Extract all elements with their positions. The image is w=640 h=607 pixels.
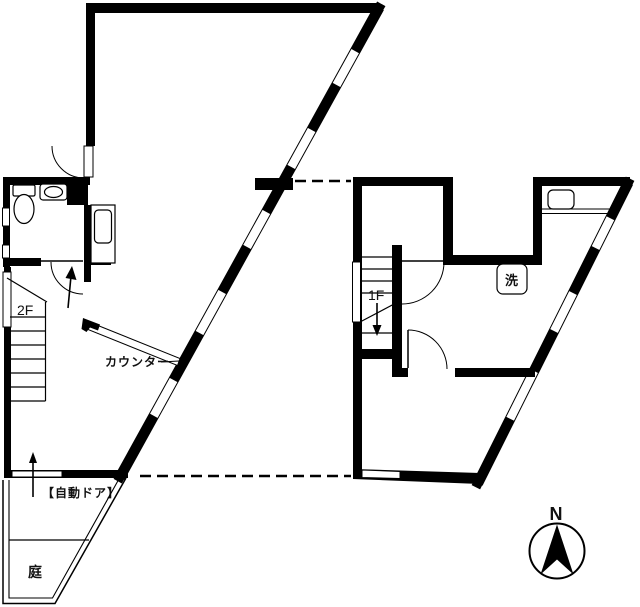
dashed-boundary-lines (140, 181, 351, 476)
entrance-door (52, 146, 93, 178)
up-arrow-icon (66, 266, 77, 308)
left-building: 2F カウンター 【自動ドア】 (3, 3, 384, 500)
window (353, 262, 361, 322)
north-compass: N (530, 504, 585, 579)
auto-door-opening (12, 471, 62, 477)
left-building-windows (3, 208, 63, 477)
counter-label: カウンター (105, 355, 170, 369)
washing-machine-icon (548, 190, 574, 209)
floor-plan-canvas: 2F カウンター 【自動ドア】 庭 (0, 0, 640, 607)
laundry-counter (542, 209, 617, 214)
floor-plan-drawing: 2F カウンター 【自動ドア】 庭 (0, 0, 640, 607)
room-door-lower (408, 330, 447, 369)
room-door-upper (402, 261, 444, 304)
down-arrow-icon (373, 303, 382, 336)
label-2f: 2F (17, 302, 33, 318)
left-building-walls (3, 3, 378, 478)
stairs-up (7, 278, 47, 401)
hand-sink-icon (40, 184, 67, 200)
garden-label: 庭 (28, 564, 43, 580)
window (3, 208, 10, 226)
kitchen-sink-icon (91, 205, 115, 263)
laundry-label: 洗 (505, 273, 519, 288)
right-building-walls (353, 177, 630, 484)
party-wall-stub (255, 178, 293, 190)
right-building: 洗 1F (353, 177, 633, 485)
window (3, 245, 10, 258)
toilet-icon (13, 185, 35, 224)
toilet-door (41, 261, 83, 294)
window (362, 470, 400, 479)
left-diagonal-window-band (116, 6, 383, 480)
label-1f: 1F (368, 287, 384, 303)
north-label: N (550, 504, 563, 524)
